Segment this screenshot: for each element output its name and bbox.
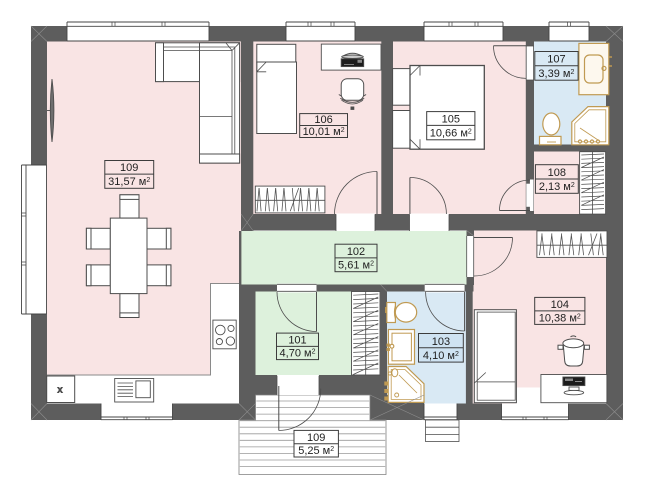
svg-text:10,66 м2: 10,66 м2: [430, 127, 472, 139]
svg-text:107: 107: [547, 54, 565, 66]
svg-text:3,39 м2: 3,39 м2: [538, 68, 574, 80]
svg-text:105: 105: [442, 113, 460, 125]
svg-text:31,57 м2: 31,57 м2: [108, 176, 150, 188]
svg-text:104: 104: [551, 299, 569, 311]
svg-text:4,70 м2: 4,70 м2: [280, 348, 316, 360]
svg-text:103: 103: [432, 336, 450, 348]
svg-text:2,13 м2: 2,13 м2: [539, 181, 575, 193]
svg-text:109: 109: [120, 162, 138, 174]
svg-text:5,25 м2: 5,25 м2: [298, 445, 334, 457]
svg-text:109: 109: [307, 432, 325, 444]
svg-text:108: 108: [548, 167, 566, 179]
svg-text:10,38 м2: 10,38 м2: [539, 312, 581, 324]
svg-text:106: 106: [314, 114, 332, 126]
svg-text:101: 101: [288, 335, 306, 347]
svg-text:10,01 м2: 10,01 м2: [303, 126, 345, 138]
svg-text:x: x: [58, 385, 63, 396]
svg-text:5,61 м2: 5,61 м2: [338, 260, 374, 272]
svg-text:102: 102: [347, 246, 365, 258]
svg-text:4,10 м2: 4,10 м2: [423, 350, 459, 362]
